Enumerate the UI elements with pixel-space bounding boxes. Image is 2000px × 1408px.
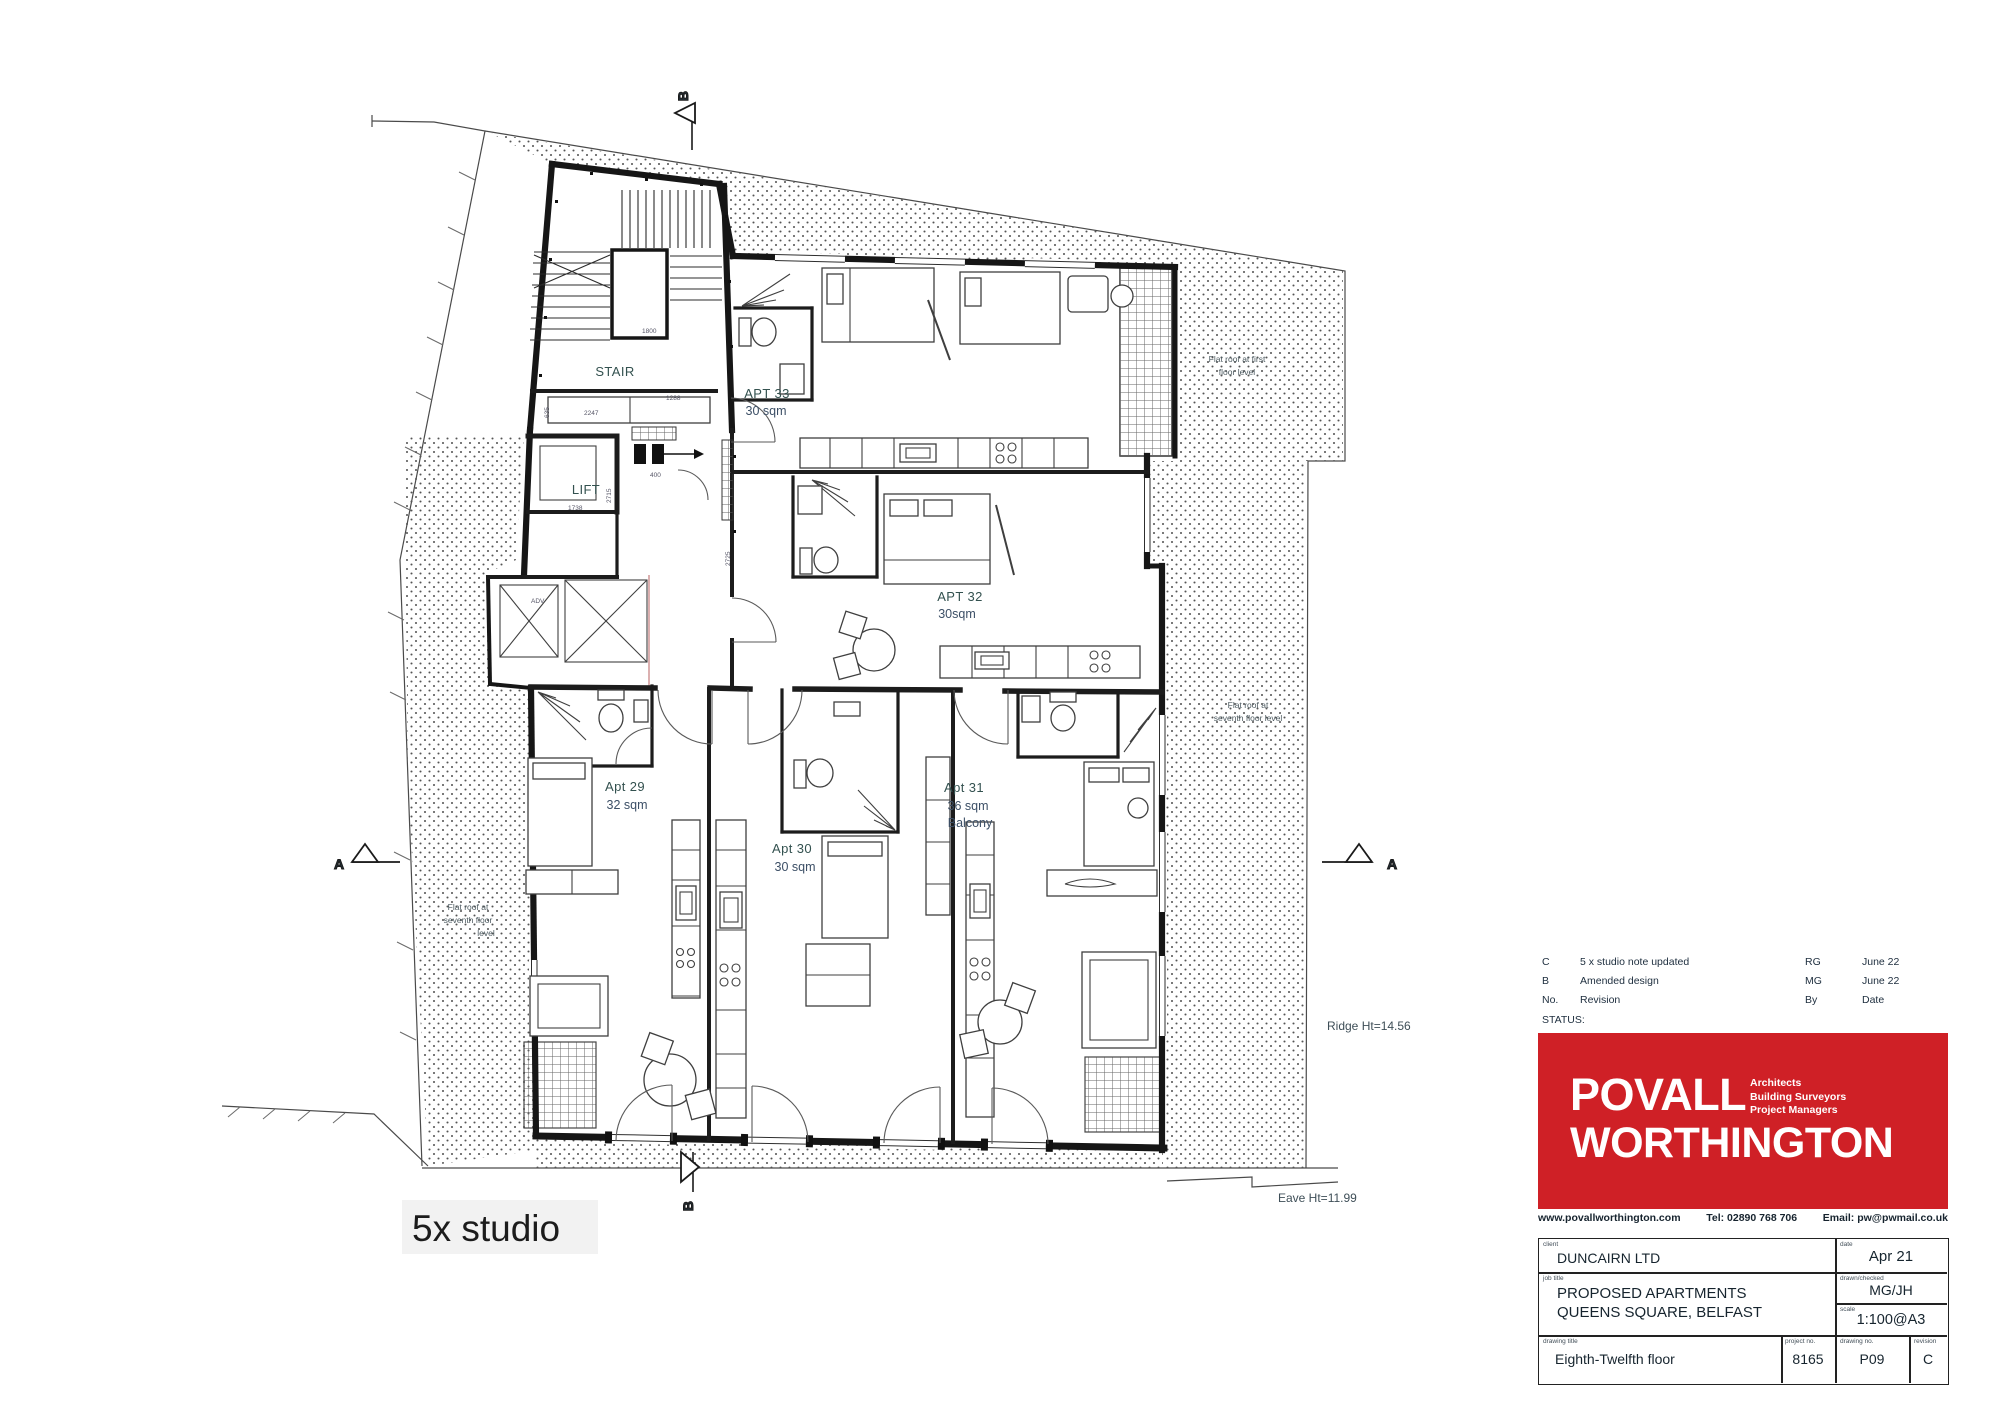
company-logo: POVALL WORTHINGTON Architects Building S… (1538, 1033, 1948, 1209)
revision-header-by: By (1805, 994, 1862, 1013)
section-label-b-top: B (675, 91, 691, 101)
drawing-no-value: P09 (1835, 1351, 1909, 1367)
apt31-area: 36 sqm (948, 799, 989, 813)
date-label: date (1840, 1241, 1853, 1248)
dim-lobby-width: 2247 (584, 410, 599, 417)
drawing-sheet: B B A A STAIR LIFT APT 33 30 sqm APT 32 … (0, 0, 2000, 1408)
titleblock-table: client DUNCAIRN LTD date Apr 21 job titl… (1538, 1238, 1949, 1385)
flat-roof-seventh-right-line2: seventh floor level (1214, 713, 1283, 723)
scale-value: 1:100@A3 (1835, 1312, 1947, 1328)
job-title-line2: QUEENS SQUARE, BELFAST (1557, 1304, 1762, 1321)
logo-service-2: Building Surveyors (1750, 1091, 1846, 1105)
apt29-name: Apt 29 (605, 779, 645, 794)
stair-label: STAIR (595, 364, 634, 379)
flat-roof-seventh-left-line3: level (477, 928, 495, 938)
duct-label: ADV (531, 598, 545, 605)
revision-desc: 5 x studio note updated (1580, 956, 1805, 975)
flat-roof-seventh-right-line1: Flat roof at (1228, 700, 1269, 710)
revision-no: B (1542, 975, 1580, 994)
revision-header-no: No. (1542, 994, 1580, 1013)
section-marker-a-left: A (334, 844, 400, 872)
apt32-name: APT 32 (937, 589, 983, 604)
email-text: Email: pw@pwmail.co.uk (1823, 1212, 1948, 1224)
apt29-area: 32 sqm (607, 798, 648, 812)
drawn-checked-value: MG/JH (1835, 1282, 1947, 1298)
project-no-label: project no. (1785, 1338, 1815, 1345)
revision-value: C (1909, 1351, 1947, 1367)
project-no-value: 8165 (1781, 1351, 1835, 1367)
drawn-checked-label: drawn/checked (1840, 1275, 1884, 1282)
drawing-no-label: drawing no. (1840, 1338, 1874, 1345)
apt30-name: Apt 30 (772, 841, 812, 856)
logo-line1: POVALL (1570, 1069, 1746, 1121)
apt31-balcony-note: Balcony (948, 816, 993, 830)
revision-label: revision (1914, 1338, 1936, 1345)
section-label-a-right: A (1387, 856, 1397, 872)
apt33-area: 30 sqm (746, 404, 787, 418)
apt32-area: 30sqm (938, 607, 976, 621)
lift-label: LIFT (572, 482, 600, 497)
section-label-a-left: A (334, 856, 344, 872)
dim-lobby-side: 635 (544, 407, 551, 418)
section-marker-a-right: A (1322, 844, 1397, 872)
dim-lift-depth: 2715 (606, 488, 613, 503)
job-title-line1: PROPOSED APARTMENTS (1557, 1285, 1747, 1302)
flat-roof-seventh-left-line1: Flat roof at (448, 902, 489, 912)
revision-desc: Amended design (1580, 975, 1805, 994)
website-text: www.povallworthington.com (1538, 1212, 1681, 1224)
revision-header-desc: Revision (1580, 994, 1805, 1013)
drawing-title-value: Eighth-Twelfth floor (1555, 1351, 1675, 1367)
client-label: client (1543, 1241, 1558, 1248)
revision-by: RG (1805, 956, 1862, 975)
telephone-text: Tel: 02890 768 706 (1706, 1212, 1797, 1224)
dim-door: 400 (650, 472, 661, 479)
dim-stair-flight: 1288 (666, 395, 681, 402)
revision-by: MG (1805, 975, 1862, 994)
drawing-title-label: drawing title (1543, 1338, 1578, 1345)
studio-count-note: 5x studio (412, 1208, 560, 1249)
apt31-name: Apt 31 (944, 780, 984, 795)
revision-date: June 22 (1862, 975, 1950, 994)
contact-line: www.povallworthington.com Tel: 02890 768… (1538, 1212, 1948, 1224)
ridge-height-label: Ridge Ht=14.56 (1327, 1019, 1411, 1033)
revision-table: C 5 x studio note updated RG June 22 B A… (1542, 956, 1950, 1013)
eave-height-label: Eave Ht=11.99 (1278, 1191, 1357, 1205)
apt33-name: APT 33 (744, 386, 790, 401)
revision-header-date: Date (1862, 994, 1950, 1013)
section-label-b-bottom: B (680, 1201, 696, 1211)
flat-roof-first-line2: floor level (1219, 367, 1255, 377)
status-label: STATUS: (1542, 1014, 1585, 1026)
section-marker-b-top: B (675, 91, 695, 150)
revision-date: June 22 (1862, 956, 1950, 975)
logo-service-3: Project Managers (1750, 1104, 1846, 1118)
job-title-label: job title (1543, 1275, 1564, 1282)
dim-lift-width: 1738 (568, 505, 583, 512)
revision-no: C (1542, 956, 1580, 975)
flat-roof-first-line1: Flat roof at first (1209, 354, 1266, 364)
client-value: DUNCAIRN LTD (1557, 1250, 1660, 1266)
logo-line2: WORTHINGTON (1570, 1119, 1893, 1168)
logo-service-1: Architects (1750, 1077, 1846, 1091)
date-value: Apr 21 (1835, 1248, 1947, 1265)
flat-roof-seventh-left-line2: seventh floor (444, 915, 493, 925)
dim-stair-landing: 1800 (642, 328, 657, 335)
apt30-area: 30 sqm (775, 860, 816, 874)
dim-corridor: 2725 (725, 551, 732, 566)
